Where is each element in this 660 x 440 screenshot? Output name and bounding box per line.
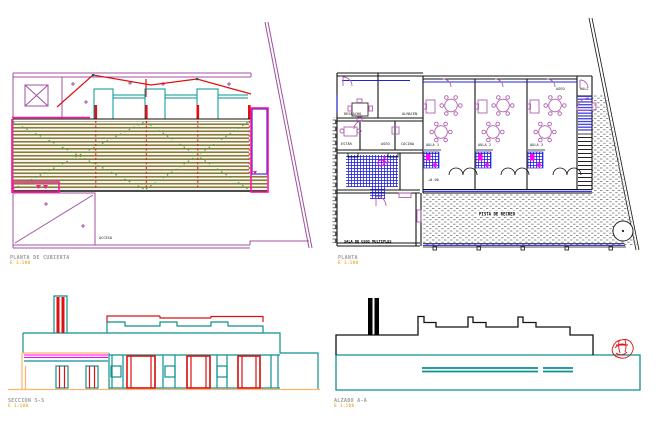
label-living: ESTAR xyxy=(341,142,353,146)
section-left-house xyxy=(22,353,109,389)
label-level: +0.00 xyxy=(428,178,439,182)
roof-plan-scale: E 1:100 xyxy=(10,261,70,267)
roof-site-label: ACCESO xyxy=(99,236,112,240)
elevation-title-block: ALZADO A-A E 1:100 xyxy=(334,398,367,410)
chimney xyxy=(368,298,373,335)
label-multi: SALA DE USOS MULTIPLES xyxy=(344,240,392,244)
section-drawing xyxy=(8,296,320,390)
label-hall: HALL xyxy=(580,87,589,91)
kitchen-tiles xyxy=(346,155,398,199)
classroom-2 xyxy=(476,79,530,175)
elevation-scale: E 1:100 xyxy=(334,404,367,410)
drawing-sheet: ACCESO xyxy=(0,0,660,440)
cad-drawing: ACCESO xyxy=(0,0,660,440)
floor-plan-scale: E 1:100 xyxy=(338,261,358,267)
elevation-drawing xyxy=(336,298,640,390)
label-toilet2: ASEO xyxy=(556,87,565,91)
chimney-flue xyxy=(57,297,60,333)
label-aula3: AULA 3 xyxy=(530,143,543,147)
roof-skylights xyxy=(94,89,248,119)
label-toilet: ASEO xyxy=(381,142,390,146)
section-roof-red xyxy=(57,297,264,388)
label-kitchen: COCINA xyxy=(401,142,415,146)
left-fence-posts xyxy=(333,117,338,243)
section-structure xyxy=(23,296,318,389)
floor-plan-title-block: PLANTA E 1:100 xyxy=(338,255,358,267)
section-title-block: SECCION S-S E 1:100 xyxy=(8,398,44,410)
section-scale: E 1:100 xyxy=(8,404,44,410)
label-office: DESPACHO xyxy=(344,112,361,116)
floor-plan-drawing: DESPACHO ALMACEN ESTAR ASEO COCINA AULA … xyxy=(333,18,640,250)
railing-lines xyxy=(422,368,573,372)
terrace-hatch xyxy=(423,95,637,246)
base-wall xyxy=(336,355,640,390)
label-aula1: AULA 1 xyxy=(426,143,439,147)
roof-plan-drawing: ACCESO xyxy=(12,22,312,248)
classroom-3 xyxy=(528,79,582,175)
label-terrace: PISTA DE RECREO xyxy=(479,212,516,217)
classroom-1 xyxy=(424,79,478,175)
label-store: ALMACEN xyxy=(402,112,417,116)
label-aula2: AULA 2 xyxy=(478,143,491,147)
roof-plan-title-block: PLANTA DE CUBIERTA E 1:100 xyxy=(10,255,70,267)
